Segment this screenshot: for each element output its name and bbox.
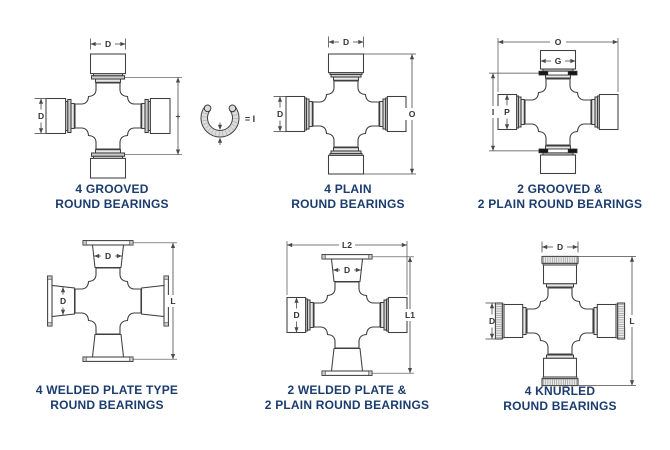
bearing-cup-left-plain bbox=[287, 298, 313, 333]
dimension-label: D bbox=[344, 265, 350, 275]
dimension-label: = I bbox=[245, 114, 255, 124]
dimension-label: O bbox=[409, 109, 416, 119]
dimension-label: D bbox=[105, 39, 111, 49]
diagram-knurled-4: DDL bbox=[486, 242, 640, 386]
dimension-label: D bbox=[105, 251, 111, 261]
title-line: 4 WELDED PLATE TYPE bbox=[0, 383, 222, 398]
bearing-cup-bottom-plain bbox=[329, 148, 364, 174]
dimension-label: O bbox=[555, 37, 562, 47]
cross-body bbox=[75, 268, 141, 334]
title-line: 4 GROOVED bbox=[0, 182, 227, 197]
title-line: 2 PLAIN ROUND BEARINGS bbox=[445, 197, 670, 212]
cross-body bbox=[75, 83, 141, 149]
diagram-grooved-4: DD+= I bbox=[35, 39, 256, 179]
bearing-cup-right-knurled bbox=[594, 303, 625, 339]
bearing-cup-right-plain bbox=[592, 95, 618, 130]
dimension-label: I bbox=[492, 107, 494, 117]
diagram-welded-plate-4: DDL bbox=[48, 241, 180, 362]
title-line: ROUND BEARINGS bbox=[0, 197, 227, 212]
bearing-cup-right-grooved bbox=[142, 99, 170, 134]
dimension-label: L bbox=[629, 316, 634, 326]
bearing-cup-top-knurled bbox=[542, 256, 578, 287]
bearing-cup-right-plain bbox=[380, 97, 406, 132]
dimension-label: D bbox=[277, 109, 283, 119]
bearing-cup-left-knurled bbox=[495, 303, 526, 339]
dimension-label: P bbox=[504, 107, 510, 117]
dimension-label: D bbox=[557, 242, 563, 252]
bearing-cup-bottom-plate bbox=[322, 349, 372, 376]
diagram-welded-2-plain-2: L2DDL1 bbox=[287, 240, 417, 376]
dimension-label: + bbox=[176, 111, 181, 121]
dimension-label: D bbox=[293, 310, 299, 320]
diagram-title-2-grooved-2-plain: 2 GROOVED & 2 PLAIN ROUND BEARINGS bbox=[445, 182, 670, 211]
bearing-cup-bottom-grooved bbox=[91, 150, 126, 178]
title-line: 2 GROOVED & bbox=[445, 182, 670, 197]
diagram-title-4-knurled: 4 KNURLED ROUND BEARINGS bbox=[445, 384, 670, 413]
diagram-plain-4: DDO bbox=[274, 37, 420, 175]
dimension-label: L1 bbox=[405, 310, 415, 320]
cross-body bbox=[313, 81, 379, 147]
dimension-label: D bbox=[343, 37, 349, 47]
cross-body bbox=[525, 79, 591, 145]
bearing-cup-top-grooved bbox=[91, 54, 126, 82]
dimension-label: D bbox=[60, 296, 66, 306]
snap-ring-icon: = I bbox=[201, 105, 255, 145]
diagram-title-4-welded-plate: 4 WELDED PLATE TYPE ROUND BEARINGS bbox=[0, 383, 222, 412]
dimension-label: D bbox=[489, 316, 495, 326]
title-line: 4 KNURLED bbox=[445, 384, 670, 399]
title-line: 4 PLAIN bbox=[233, 182, 463, 197]
dimension-label: G bbox=[555, 56, 562, 66]
title-line: 2 PLAIN ROUND BEARINGS bbox=[232, 398, 462, 413]
diagram-grooved-2-plain-2: OGIP bbox=[486, 37, 618, 174]
dimension-label: D bbox=[38, 111, 44, 121]
dimension-label: L bbox=[170, 296, 175, 306]
bearing-cup-bottom-plate bbox=[83, 335, 133, 362]
bearing-types-panel: DD+= IDDOOGIPDDLL2DDL1DDL 4 GROOVED ROUN… bbox=[0, 0, 670, 450]
title-line: ROUND BEARINGS bbox=[0, 398, 222, 413]
bearing-cup-left-plain bbox=[286, 97, 312, 132]
bearing-cup-bottom-grooved-snap bbox=[539, 146, 577, 174]
bearing-cup-bottom-knurled bbox=[542, 355, 578, 386]
cross-body bbox=[527, 288, 593, 354]
title-line: 2 WELDED PLATE & bbox=[232, 383, 462, 398]
diagram-title-4-grooved: 4 GROOVED ROUND BEARINGS bbox=[0, 182, 227, 211]
diagram-title-2-welded-2-plain: 2 WELDED PLATE & 2 PLAIN ROUND BEARINGS bbox=[232, 383, 462, 412]
cross-body bbox=[314, 282, 380, 348]
dimension-label: L2 bbox=[342, 240, 352, 250]
bearing-cup-left-plain bbox=[498, 95, 524, 130]
title-line: ROUND BEARINGS bbox=[445, 399, 670, 414]
dimensions-grooved-4: DD+= I bbox=[35, 39, 256, 155]
title-line: ROUND BEARINGS bbox=[233, 197, 463, 212]
bearing-cup-left-grooved bbox=[46, 99, 74, 134]
diagram-title-4-plain: 4 PLAIN ROUND BEARINGS bbox=[233, 182, 463, 211]
bearing-cup-right-plate bbox=[142, 276, 169, 326]
bearing-cup-top-plain bbox=[329, 54, 364, 80]
